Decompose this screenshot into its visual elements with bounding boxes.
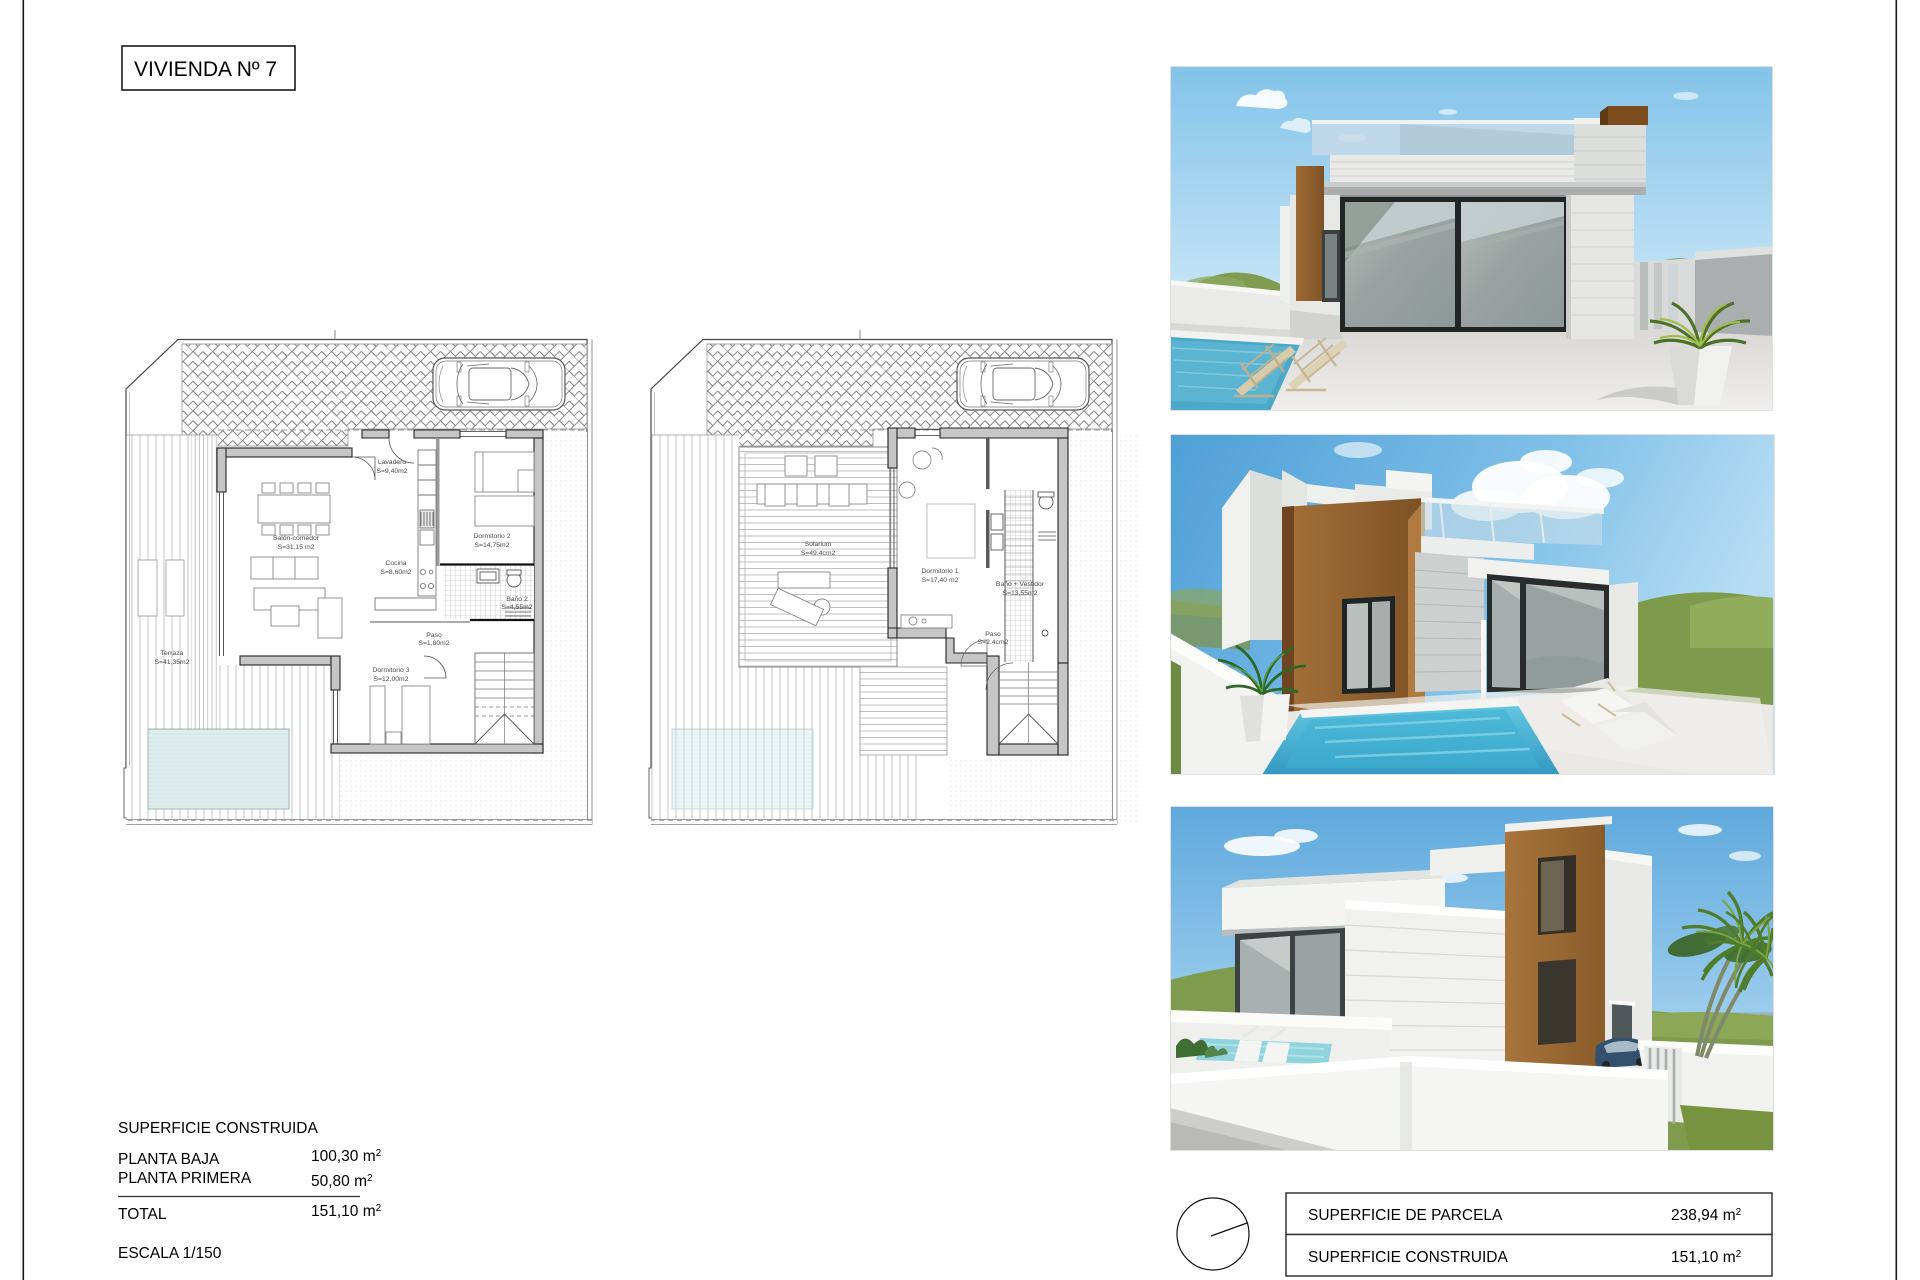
svg-text:S=49.4cm2: S=49.4cm2 xyxy=(801,550,836,557)
svg-text:SUPERFICIE CONSTRUIDA: SUPERFICIE CONSTRUIDA xyxy=(118,1120,318,1137)
svg-text:Cocina: Cocina xyxy=(385,560,406,567)
svg-text:S=8,60m2: S=8,60m2 xyxy=(380,569,411,576)
svg-text:Dormitorio 2: Dormitorio 2 xyxy=(473,533,510,540)
svg-text:S=4,55m2: S=4,55m2 xyxy=(501,604,532,611)
svg-text:VIVIENDA Nº 7: VIVIENDA Nº 7 xyxy=(134,58,277,81)
svg-text:Terraza: Terraza xyxy=(161,650,184,657)
svg-text:SUPERFICIE CONSTRUIDA: SUPERFICIE CONSTRUIDA xyxy=(1308,1249,1508,1266)
svg-text:S=9,40m2: S=9,40m2 xyxy=(376,468,407,475)
svg-text:151,10 m2: 151,10 m2 xyxy=(311,1203,382,1220)
svg-text:S=12,00m2: S=12,00m2 xyxy=(374,676,409,683)
svg-text:50,80 m2: 50,80 m2 xyxy=(311,1173,373,1190)
svg-text:Baño + Vestidor: Baño + Vestidor xyxy=(996,581,1045,588)
svg-text:S=1,80m2: S=1,80m2 xyxy=(418,640,449,647)
svg-text:Paso: Paso xyxy=(426,632,442,639)
svg-text:ESCALA 1/150: ESCALA 1/150 xyxy=(118,1245,222,1262)
svg-text:SUPERFICIE DE PARCELA: SUPERFICIE DE PARCELA xyxy=(1308,1207,1503,1224)
svg-text:238,94 m2: 238,94 m2 xyxy=(1671,1207,1742,1224)
svg-text:S=2.4cm2: S=2.4cm2 xyxy=(978,639,1009,646)
svg-text:Dormitorio 1: Dormitorio 1 xyxy=(921,568,958,575)
svg-text:S=14,75m2: S=14,75m2 xyxy=(475,542,510,549)
svg-text:TOTAL: TOTAL xyxy=(118,1206,167,1223)
svg-text:Baño 2: Baño 2 xyxy=(506,596,528,603)
svg-text:Lavadero: Lavadero xyxy=(378,459,407,466)
svg-text:151,10 m2: 151,10 m2 xyxy=(1671,1249,1742,1266)
svg-text:Salón-comedor: Salón-comedor xyxy=(273,535,320,542)
svg-text:PLANTA BAJA: PLANTA BAJA xyxy=(118,1151,220,1168)
svg-text:S=13,55m2: S=13,55m2 xyxy=(1003,590,1038,597)
svg-text:100,30 m2: 100,30 m2 xyxy=(311,1148,382,1165)
svg-text:Paso: Paso xyxy=(985,631,1001,638)
svg-text:S=41,35m2: S=41,35m2 xyxy=(155,659,190,666)
svg-text:S=31,15 m2: S=31,15 m2 xyxy=(278,544,315,551)
svg-text:Solarium: Solarium xyxy=(805,541,832,548)
svg-text:S=17,40 m2: S=17,40 m2 xyxy=(922,577,959,584)
svg-text:PLANTA PRIMERA: PLANTA PRIMERA xyxy=(118,1170,252,1187)
svg-text:Dormitorio 3: Dormitorio 3 xyxy=(372,667,409,674)
